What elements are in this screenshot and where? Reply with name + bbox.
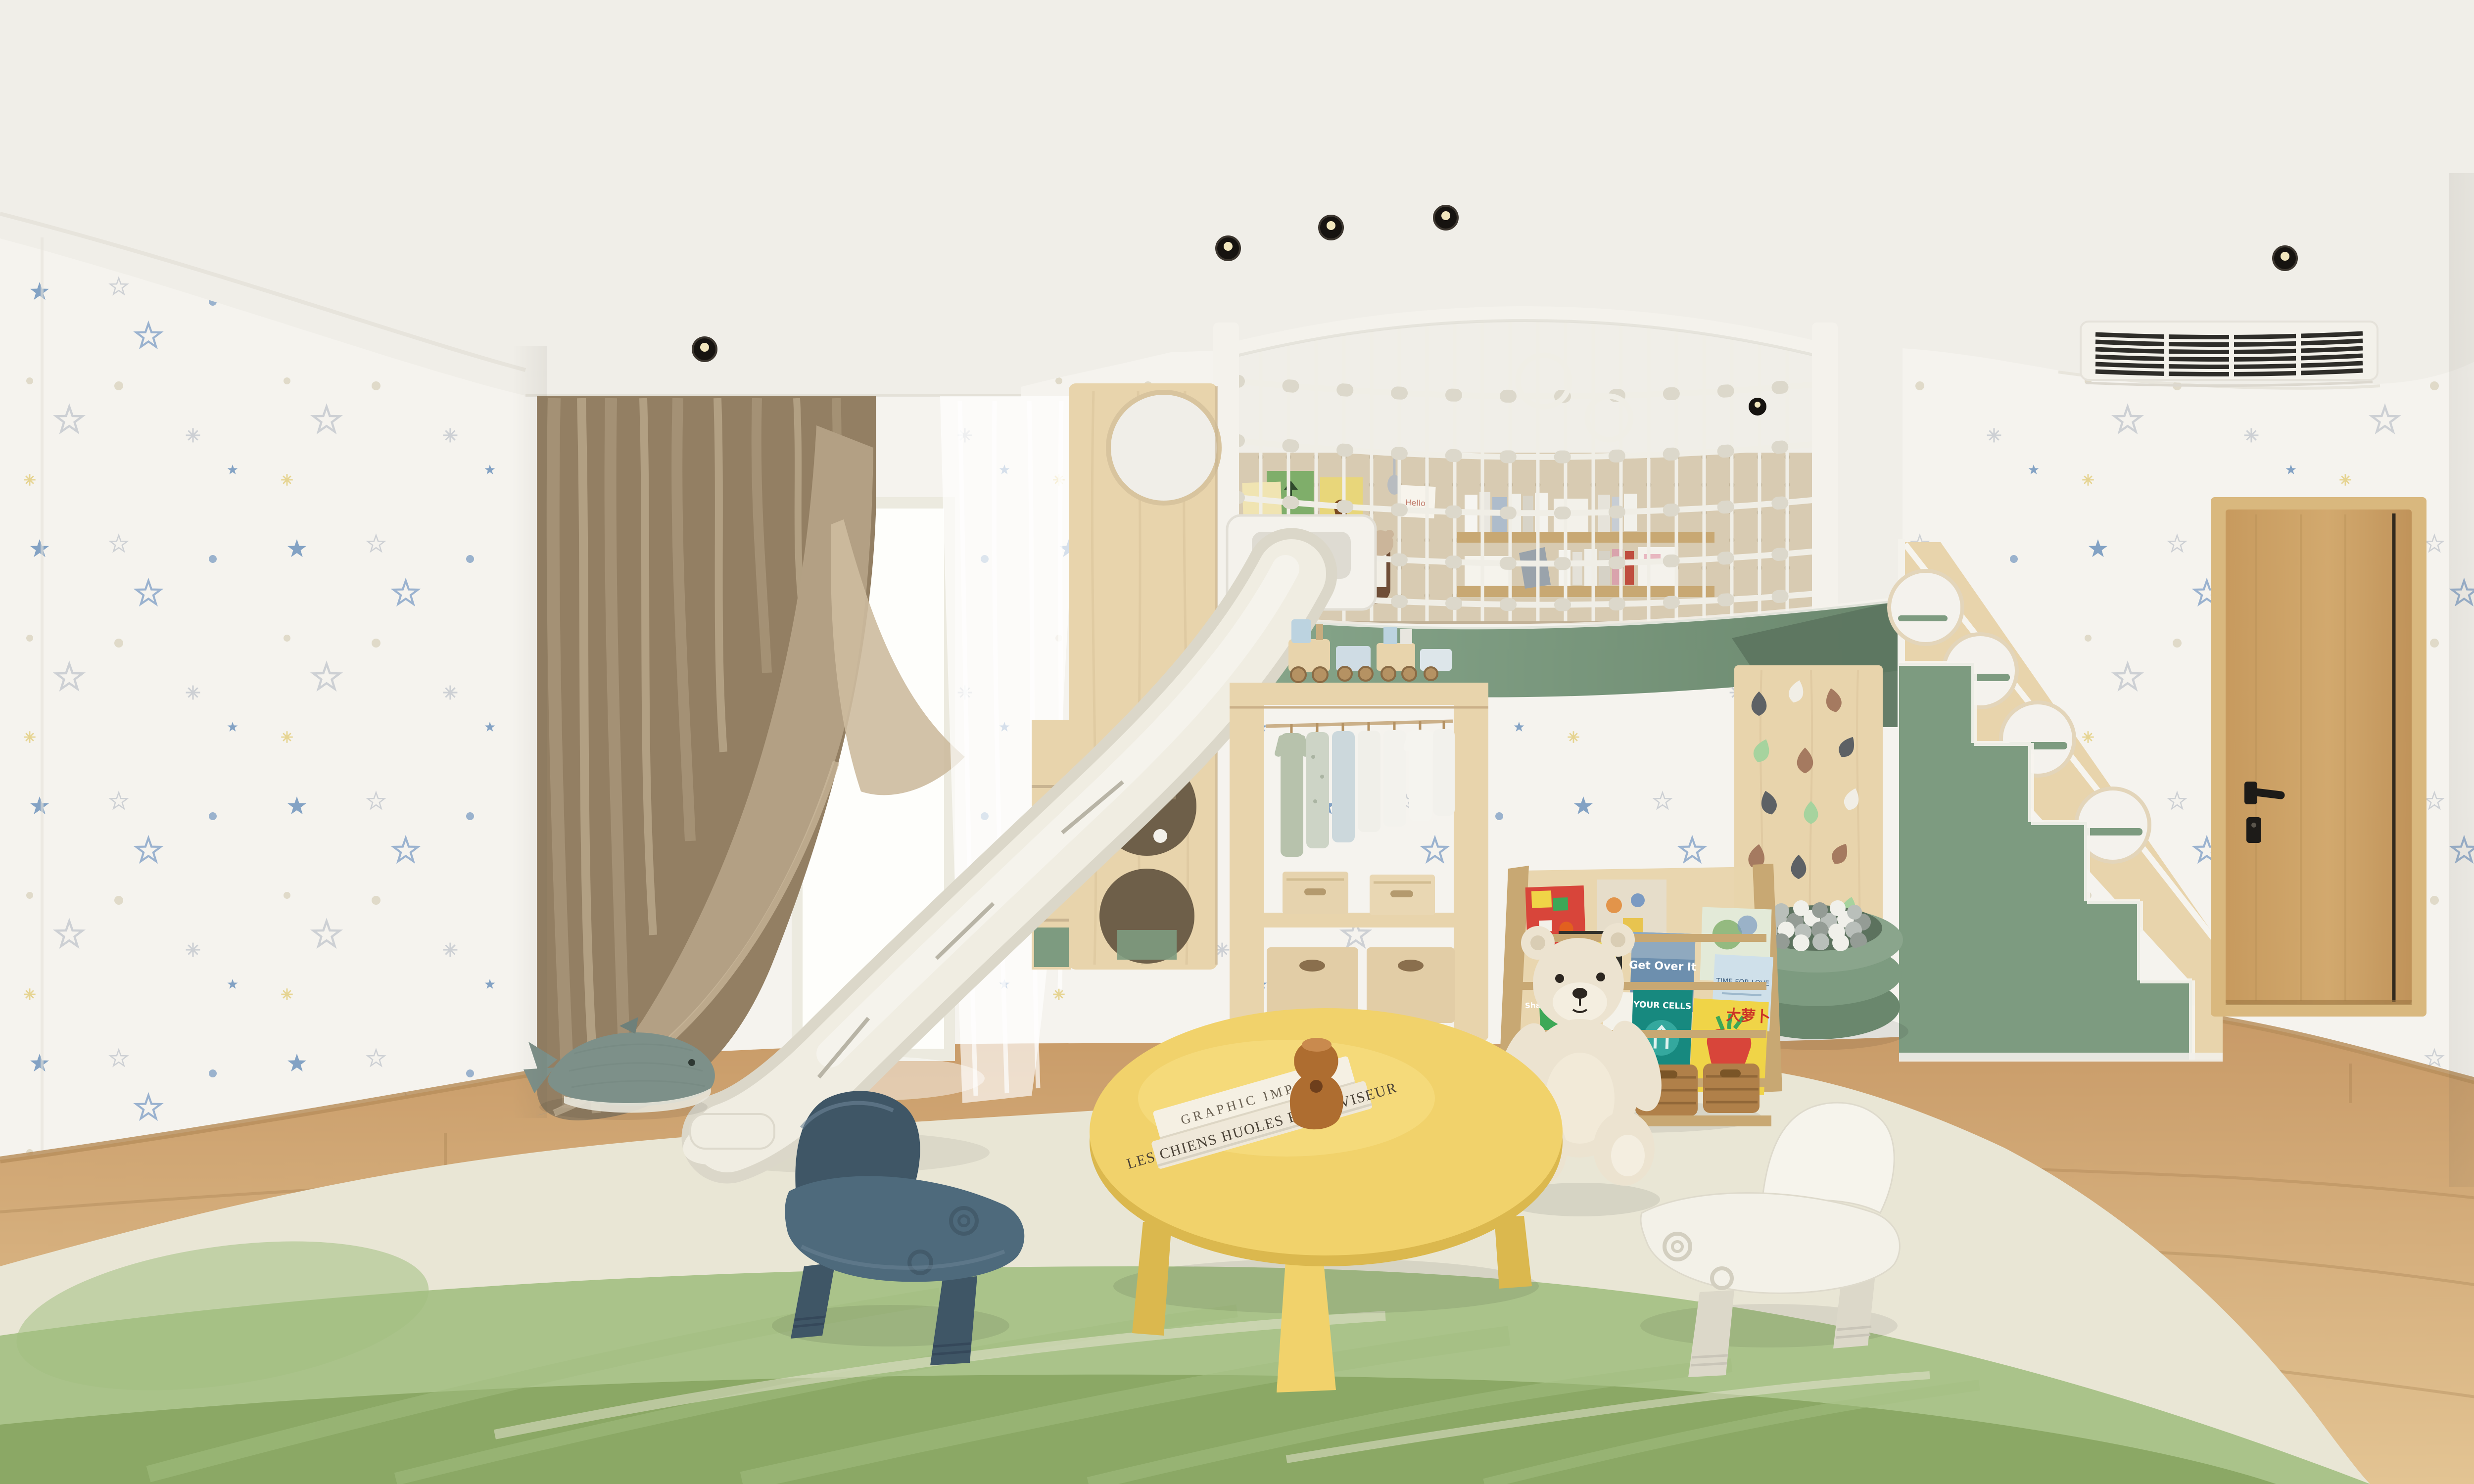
downlight <box>1749 398 1766 416</box>
book-title-get-over-it: Get Over It <box>1629 959 1697 974</box>
book-title-radish: 大萝卜 <box>1725 1007 1771 1026</box>
net-post-right <box>1812 323 1838 624</box>
storage-box <box>1283 872 1348 914</box>
downlight <box>1434 206 1458 230</box>
downlight <box>1216 236 1240 260</box>
wicker-basket <box>1703 1064 1760 1113</box>
downlight <box>2273 246 2297 270</box>
storage-box <box>1370 875 1435 915</box>
downlight <box>693 337 716 361</box>
door <box>2211 497 2426 1017</box>
slide-foot <box>690 1114 774 1149</box>
wall-corner-shade-right <box>2449 173 2474 1187</box>
scene-svg: PICASSO Hello! <box>0 0 2474 1484</box>
loft-interior-right <box>1831 317 1903 613</box>
ac-vent <box>2081 322 2378 386</box>
downlight <box>1319 216 1343 239</box>
cubby-drawer-green <box>1034 927 1069 967</box>
panorama-stage: PICASSO Hello! <box>0 0 2474 1484</box>
wood-sculpture <box>1290 1038 1343 1129</box>
book-title-cells: YOUR CELLS <box>1633 1000 1692 1012</box>
wall-corner-shade-left <box>512 346 547 1118</box>
